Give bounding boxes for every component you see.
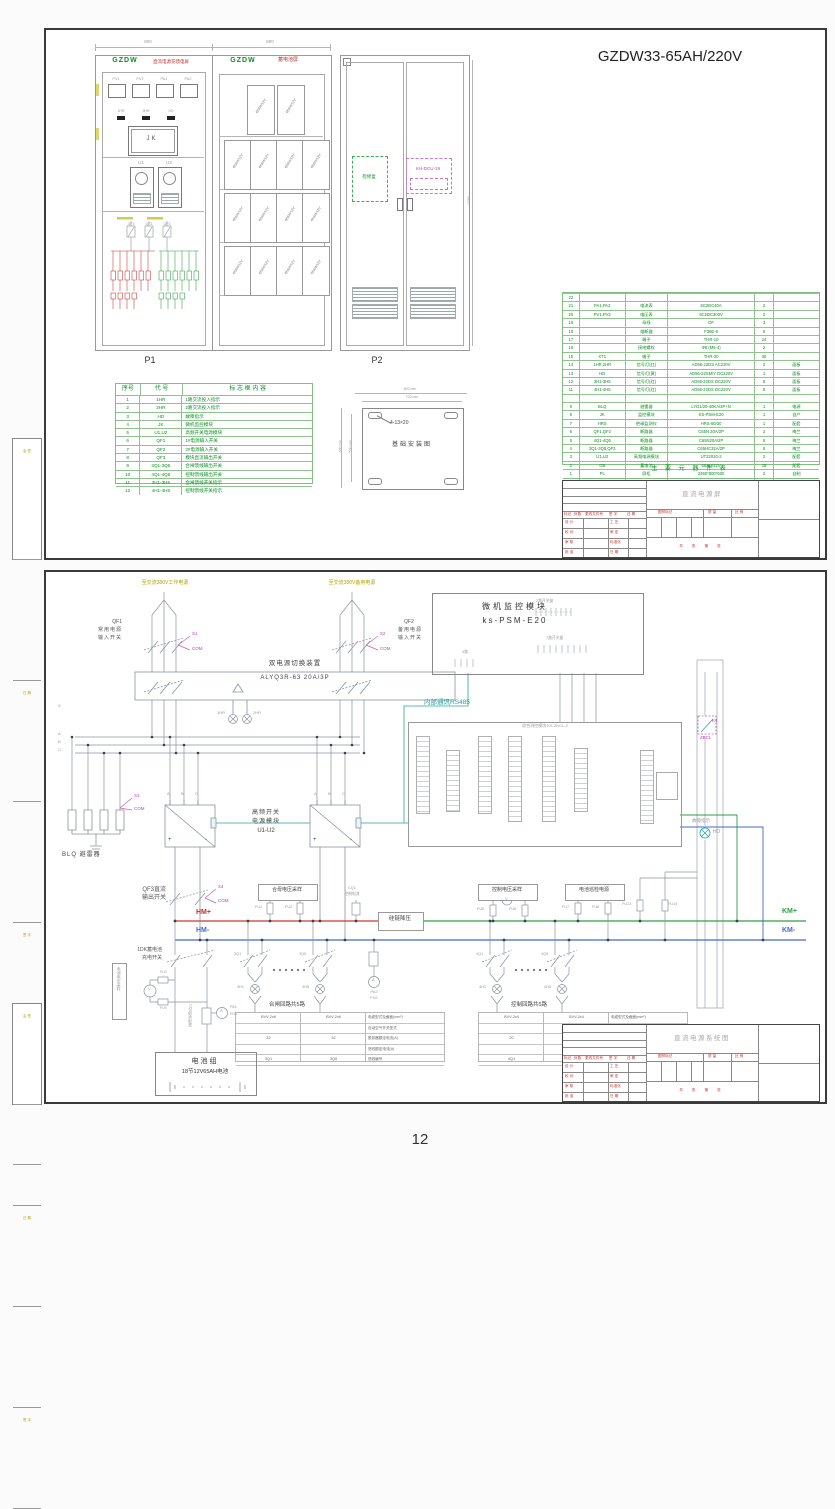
monitor-io3-label: 4路 bbox=[462, 650, 468, 654]
bom-no: 4 bbox=[563, 445, 579, 452]
legend-row: 2 2HR 2路交流投入指示 bbox=[116, 403, 312, 411]
p1-yellow-tag bbox=[96, 84, 99, 96]
dim-tick bbox=[330, 44, 331, 51]
feeder-cell bbox=[301, 1024, 366, 1035]
ats-name: 双电源切换装置 bbox=[215, 660, 375, 667]
module-term-b: B bbox=[181, 792, 184, 797]
km-minus-feed-wire bbox=[680, 827, 763, 940]
bom-qty: 2 bbox=[754, 453, 773, 460]
legend-row: 7 QF2 2#电源输入开关 bbox=[116, 445, 312, 453]
bom-note bbox=[773, 319, 819, 326]
tb-sig: 审 定 bbox=[610, 531, 618, 535]
door-handle bbox=[397, 198, 403, 211]
p1-wiring-schematic bbox=[103, 213, 205, 343]
bom-name: 绝缘监测仪 bbox=[625, 420, 667, 427]
bom-code: 4H1-4H5 bbox=[579, 386, 625, 393]
bom-note bbox=[773, 395, 819, 402]
module-plus: + bbox=[168, 837, 172, 844]
red-wiring bbox=[111, 251, 155, 309]
fuse-label-fu14: FU14 bbox=[668, 902, 677, 906]
bom-row: 21 PA1,PA2 电流表 6C2DC40A 2 bbox=[563, 301, 819, 309]
fuse-label-fu8: FU8 bbox=[592, 905, 599, 909]
u2-grille bbox=[161, 193, 179, 204]
bom-code bbox=[579, 395, 625, 402]
dim-tick bbox=[212, 44, 213, 51]
bom-no: 22 bbox=[563, 294, 579, 301]
bom-row: 15 XT1 端子 THR-30 30 bbox=[563, 352, 819, 360]
fnd-dim-inner bbox=[362, 401, 462, 402]
bom-qty: 1 bbox=[754, 411, 773, 418]
margin-cell bbox=[13, 1105, 41, 1206]
feeder-cell: 4Q1 bbox=[479, 1055, 544, 1066]
legend-desc: 合闸馈线开关指示 bbox=[181, 479, 312, 486]
blq-aux-com: COM bbox=[134, 806, 145, 811]
tb-sig: 日 期 bbox=[610, 1095, 618, 1099]
tb-mark-col: 质 量 bbox=[708, 511, 716, 515]
bom-no: 7 bbox=[563, 420, 579, 427]
battery-voltmeter-v: V bbox=[148, 987, 151, 992]
battery-cell-label: 65AH/12V bbox=[280, 91, 301, 122]
terminal-strip bbox=[478, 736, 492, 814]
bom-qty: 2 bbox=[754, 428, 773, 435]
bom-name: 接地螺栓 bbox=[625, 344, 667, 351]
legend-table: 序号 代 号 标 志 框 内 容 1 1HR 1路交流投入指示 2 2HR 2路… bbox=[115, 383, 313, 484]
fnd-dim-800: 800 mm bbox=[390, 387, 430, 391]
battery-pack-title: 电池组 bbox=[155, 1058, 255, 1066]
bom-name: 避雷器 bbox=[625, 403, 667, 410]
legend-row: 4 JK 微机监控模块 bbox=[116, 420, 312, 428]
battery-cell: 65AH/12V bbox=[276, 140, 304, 190]
fuse-label-fu2: FU2 bbox=[285, 905, 292, 909]
legend-code: JK bbox=[139, 421, 181, 428]
feeder-3q1-label: 3Q1 bbox=[234, 952, 241, 956]
bom-qty: 1 bbox=[754, 420, 773, 427]
feeder-4q5-label: 4Q5 bbox=[541, 952, 548, 956]
titleblock-sheet2: 标记 处数 更改文件号 签 字 日 期 设 计 校 对 审 核 批 准 工 艺 … bbox=[562, 1024, 820, 1102]
bom-name: 电流表 bbox=[625, 302, 667, 309]
bom-body: 22 21 PA1,PA2 电流表 6C2DC40A 2 20 PV1,PV2 … bbox=[563, 293, 819, 478]
feeder-cell bbox=[479, 1024, 544, 1035]
bom-qty: 5 bbox=[754, 386, 773, 393]
measure-sub-box bbox=[656, 772, 678, 800]
bom-row: 6 QF1,QF2 断路器 C65N 20A/2P 2 梅兰 bbox=[563, 427, 819, 435]
phase-label-c: C bbox=[58, 748, 61, 753]
bom-note bbox=[773, 344, 819, 351]
monitor-model: ks-PSM-E20 bbox=[450, 616, 580, 625]
fuse-label-fu7: FU7 bbox=[562, 905, 569, 909]
fault-indicator-label: 故障指示 bbox=[692, 818, 710, 823]
bom-code bbox=[579, 319, 625, 326]
tb-mark-col: 质 量 bbox=[708, 1055, 716, 1059]
cq1-label-1: CQ1 bbox=[334, 886, 370, 890]
bom-model: AD56-22DS DC220V bbox=[667, 386, 754, 393]
bom-no: 15 bbox=[563, 353, 579, 360]
feeder-group-closing bbox=[240, 921, 335, 1012]
bom-row: 17 端子 THR-10 24 bbox=[563, 335, 819, 343]
battery-cell: 65AH/12V bbox=[250, 140, 278, 190]
cabinet-p2-brand: GZDW bbox=[213, 57, 273, 65]
dim-line-height bbox=[472, 60, 473, 346]
legend-code: 3H1-3H5 bbox=[139, 479, 181, 486]
bom-model: C65N20A/2P bbox=[667, 437, 754, 444]
bom-model: THR-30 bbox=[667, 353, 754, 360]
ac-lamp2-label: 2HR bbox=[253, 711, 261, 716]
rs485-label: 内部通讯RS485 bbox=[424, 699, 470, 706]
bom-qty: 2 bbox=[754, 344, 773, 351]
bom-qty: 2 bbox=[754, 311, 773, 318]
fuse-label-fu13: FU13 bbox=[622, 902, 631, 906]
qf1-name-2: 输入开关 bbox=[70, 636, 122, 642]
bom-row: 3 U1,U2 高频电源模块 UT22010-2 2 配套 bbox=[563, 452, 819, 460]
battery-cell-label: 65AH/12V bbox=[227, 199, 248, 230]
bom-code: PV1,PV2 bbox=[579, 311, 625, 318]
terminal-strip bbox=[640, 750, 654, 824]
feeder-header-cell: 脱扣器额定电流(A) bbox=[366, 1034, 444, 1045]
margin-cell bbox=[13, 802, 41, 923]
p1-section-line bbox=[102, 211, 204, 212]
feeder-table-closing-col2: BVV-2x6323Q5 bbox=[300, 1012, 367, 1062]
fuse-label-fu5: FU5 bbox=[477, 907, 484, 911]
battery-ammeter-a: A bbox=[220, 1009, 223, 1014]
bom-code: BLQ bbox=[579, 403, 625, 410]
legend-row: 6 QF1 1#电源输入开关 bbox=[116, 436, 312, 444]
legend-code: 2HR bbox=[139, 404, 181, 411]
legend-row: 3 HD 故障指示 bbox=[116, 412, 312, 420]
module-label-2: 电源模块 bbox=[228, 819, 304, 826]
battery-cell: 65AH/12V bbox=[250, 246, 278, 296]
bus-label-hm-plus: HM+ bbox=[196, 909, 211, 917]
dim-label-800-p2: 800 bbox=[250, 39, 290, 44]
bom-row: 9 BLQ 避雷器 LYD1/20-40KA/3P+N 1 电源 bbox=[563, 402, 819, 410]
lamp-dots bbox=[117, 116, 125, 120]
blq-aux-s3: S3 bbox=[134, 793, 140, 798]
vent-grille bbox=[410, 304, 456, 319]
margin-strip-sheet1: 会 签 日 期 签 字 审 定 bbox=[12, 438, 42, 560]
bom-code: HRS bbox=[579, 420, 625, 427]
feeder-cell: 3Q5 bbox=[301, 1055, 366, 1066]
vent-grille bbox=[352, 304, 398, 319]
tb-rev-col: 签 字 bbox=[609, 513, 617, 517]
measure-box-title: 综合测控模块 KS-ZHCL-2 bbox=[455, 724, 635, 729]
ammeter-a: A bbox=[372, 978, 375, 983]
meter-label: PV1 bbox=[108, 77, 124, 81]
bom-model: THR-10 bbox=[667, 336, 754, 343]
meter-label: PV2 bbox=[132, 77, 148, 81]
drawing-title: GZDW33-65AH/220V bbox=[530, 48, 810, 65]
bom-no: 8 bbox=[563, 411, 579, 418]
fnd-dim-vline bbox=[351, 414, 352, 482]
bom-qty bbox=[754, 395, 773, 402]
tb-sig: 审 核 bbox=[565, 541, 573, 545]
legend-no: 3 bbox=[116, 413, 139, 420]
cabinet-p2-name: 蓄电池屏 bbox=[278, 58, 328, 64]
qf1-aux-s1: S1 bbox=[192, 631, 198, 636]
u1-fan-icon bbox=[135, 172, 148, 185]
feeder-cell bbox=[236, 1024, 301, 1035]
feeder-group-control bbox=[482, 921, 577, 1012]
phase-label-a: A bbox=[58, 732, 61, 737]
battery-current-sample-label: CQ2电池电流 bbox=[188, 1004, 192, 1027]
feeder-3q5-label: 3Q5 bbox=[299, 952, 306, 956]
tb-sheet-info: 共 张 第 张 bbox=[646, 1089, 758, 1093]
meter-label: PA1 bbox=[156, 77, 172, 81]
feeder-4h1-label: 4H1 bbox=[479, 985, 486, 989]
margin-strip-sheet2: 会 签 日 期 签 字 bbox=[12, 1003, 42, 1105]
legend-desc: 2#电源输入开关 bbox=[181, 446, 312, 453]
fnd-dim-vline bbox=[341, 408, 342, 488]
bom-name: 信号灯(红) bbox=[625, 378, 667, 385]
legend-row: 1 1HR 1路交流投入指示 bbox=[116, 395, 312, 403]
bom-note bbox=[773, 302, 819, 309]
fuse-label-fu4: FU4 bbox=[160, 1006, 167, 1010]
fuse-label-fu1: FU1 bbox=[255, 905, 262, 909]
bom-code: QF1,QF2 bbox=[579, 428, 625, 435]
bom-model: C65N 20A/2P bbox=[667, 428, 754, 435]
bom-model: HRS-60/30 bbox=[667, 420, 754, 427]
legend-no: 8 bbox=[116, 454, 139, 461]
legend-desc: 1#电源输入开关 bbox=[181, 437, 312, 444]
dim-label-2360: 2360 bbox=[467, 196, 472, 205]
meter bbox=[156, 84, 174, 98]
bom-code: 4Q1-4Q5 bbox=[579, 437, 625, 444]
door-handle bbox=[407, 198, 413, 211]
bom-model: AD56-22SM/Y DC220V bbox=[667, 370, 754, 377]
battery-patrol-label: 电池巡检电源 bbox=[565, 888, 623, 894]
module-term-a: A bbox=[314, 792, 317, 797]
tb-mark-col: 比 例 bbox=[735, 511, 743, 515]
legend-desc: 微机监控模块 bbox=[181, 421, 312, 428]
bom-no: 9 bbox=[563, 403, 579, 410]
tb-sig: 工 艺 bbox=[610, 1065, 618, 1069]
yellow-marks bbox=[117, 217, 163, 220]
bom-model: 6C2DC300V bbox=[667, 311, 754, 318]
legend-no: 2 bbox=[116, 404, 139, 411]
legend-no: 4 bbox=[116, 421, 139, 428]
feeder-cell: 32 bbox=[301, 1034, 366, 1045]
bom-row: 12 3H1-3H5 信号灯(红) AD56-22DS DC220V 5 面板 bbox=[563, 377, 819, 385]
bom-name: 端子 bbox=[625, 353, 667, 360]
terminal-strip bbox=[508, 736, 522, 822]
legend-desc: 模块直流输出开关 bbox=[181, 454, 312, 461]
tb-product-name: 直流电源屏 bbox=[646, 491, 758, 498]
caption-p1: P1 bbox=[135, 355, 165, 365]
bom-model: Φ8 (M6-4) bbox=[667, 344, 754, 351]
bom-note bbox=[773, 353, 819, 360]
bom-row: 8 JK 监控模块 KS-PSM-E20 1 自产 bbox=[563, 410, 819, 418]
bom-name: 母线 bbox=[625, 319, 667, 326]
legend-no: 7 bbox=[116, 446, 139, 453]
bom-qty: 2 bbox=[754, 361, 773, 368]
module-term-b: B bbox=[328, 792, 331, 797]
bom-qty: 2 bbox=[754, 302, 773, 309]
battery-cell: 65AH/12V bbox=[224, 140, 252, 190]
tb-sig: 校 对 bbox=[565, 1075, 573, 1079]
fnd-slot-label: 4-13×20 bbox=[390, 421, 409, 427]
battery-cell-label: 65AH/12V bbox=[253, 146, 274, 177]
bom-note: 梅兰 bbox=[773, 428, 819, 435]
legend-code: 4H1-4H5 bbox=[139, 487, 181, 494]
tb-sig: 设 计 bbox=[565, 521, 573, 525]
signal-lamps-ac bbox=[229, 715, 252, 724]
tb-rev-col: 标记 bbox=[564, 513, 571, 517]
dcu-box-inner bbox=[410, 178, 448, 190]
blq-arrester bbox=[68, 810, 124, 852]
qf-glyphs bbox=[127, 221, 171, 251]
legend-desc: 高频开关电源模块 bbox=[181, 429, 312, 436]
feeder-caption-closing: 合闸回路共5路 bbox=[242, 1002, 332, 1008]
dim-line bbox=[95, 47, 212, 48]
bom-code: U1,U2 bbox=[579, 453, 625, 460]
qf3-label-2: 输出开关 bbox=[108, 895, 166, 902]
feeder-header-cell: 馈线编号 bbox=[366, 1055, 444, 1066]
bom-row: 20 PV1,PV2 电压表 6C2DC300V 2 bbox=[563, 310, 819, 318]
bom-row: 16 接地螺栓 Φ8 (M6-4) 2 bbox=[563, 343, 819, 351]
legend-no: 1 bbox=[116, 396, 139, 403]
phase-label-b: B bbox=[58, 740, 61, 745]
km-voltage-sample-label: 控制电压采样 bbox=[478, 888, 536, 894]
module-minus: - bbox=[205, 837, 207, 844]
dim-tick bbox=[95, 44, 96, 51]
shunt-mid-pa: PA2 bbox=[364, 990, 384, 994]
module-term-a: A bbox=[167, 792, 170, 797]
legend-row: 8 QF3 模块直流输出开关 bbox=[116, 453, 312, 461]
ac-source-label-1: 至交流380V工作电源 bbox=[110, 581, 220, 587]
bom-model: F36E-6 bbox=[667, 328, 754, 335]
bom-row: 13 HD 信号灯(黄) AD56-22SM/Y DC220V 1 面板 bbox=[563, 369, 819, 377]
terminal-strip bbox=[542, 736, 556, 822]
bom-no: 5 bbox=[563, 437, 579, 444]
bom-name: 断路器 bbox=[625, 428, 667, 435]
feeder-cell: BVV-2x6 bbox=[301, 1013, 366, 1024]
bom-name: 端子 bbox=[625, 336, 667, 343]
ac-source-label-2: 至交流380V备用电源 bbox=[297, 581, 407, 587]
bom-code: HD bbox=[579, 370, 625, 377]
bom-row: 19 母线 OF 3 bbox=[563, 318, 819, 326]
feeder-header-cell: 电缆型式及截面(mm²) bbox=[609, 1013, 687, 1024]
battery-cell-label: 65AH/12V bbox=[279, 146, 300, 177]
module-label-1: 高频开关 bbox=[228, 810, 304, 817]
bom-note bbox=[773, 336, 819, 343]
bom-note: 自产 bbox=[773, 411, 819, 418]
legend-no: 6 bbox=[116, 437, 139, 444]
bom-name: 熔断器 bbox=[625, 328, 667, 335]
module-label-3: U1-U2 bbox=[228, 828, 304, 835]
u2-fan-icon bbox=[163, 172, 176, 185]
lamp-label: 1HR bbox=[114, 109, 128, 113]
vent-grille bbox=[352, 287, 398, 302]
battery-cell: 65AH/12V bbox=[302, 193, 330, 243]
bom-note: 面板 bbox=[773, 361, 819, 368]
fnd-dim-outer bbox=[355, 393, 467, 394]
meter bbox=[108, 84, 126, 98]
legend-no: 11 bbox=[116, 479, 139, 486]
shunt-mid-fh: FH2 bbox=[364, 996, 384, 1000]
battery-cell: 65AH/12V bbox=[224, 246, 252, 296]
tb-rev-col: 处数 bbox=[574, 1057, 581, 1061]
tb-sig: 审 定 bbox=[610, 1075, 618, 1079]
u2-label: U2 bbox=[158, 160, 180, 165]
margin-cell bbox=[13, 560, 41, 681]
legend-header-row: 序号 代 号 标 志 框 内 容 bbox=[116, 384, 312, 395]
bom-name: 信号灯(红) bbox=[625, 361, 667, 368]
qf1-name-1: 常用电源 bbox=[70, 628, 122, 634]
tb-mark-col: 图样标记 bbox=[658, 511, 672, 515]
bom-qty: 1 bbox=[754, 370, 773, 377]
tb-sig: 工 艺 bbox=[610, 521, 618, 525]
feeder-cell bbox=[479, 1045, 544, 1056]
bom-row: 14 1HR,2HR 信号灯(红) AD56-22DS AC220V 2 面板 bbox=[563, 360, 819, 368]
qf2-name-2: 输入开关 bbox=[398, 636, 422, 642]
meter bbox=[180, 84, 198, 98]
tb-rev-col: 处数 bbox=[574, 513, 581, 517]
tb-sig: 设 计 bbox=[565, 1065, 573, 1069]
bom-no: 13 bbox=[563, 370, 579, 377]
page-number: 12 bbox=[400, 1131, 440, 1148]
bom-row: 11 4H1-4H5 信号灯(红) AD56-22DS DC220V 5 面板 bbox=[563, 385, 819, 393]
meter-label: PA2 bbox=[180, 77, 196, 81]
module-term-c: C bbox=[342, 792, 345, 797]
bom-qty: 6 bbox=[754, 437, 773, 444]
bom-code: XT1 bbox=[579, 353, 625, 360]
bom-note: 梅兰 bbox=[773, 445, 819, 452]
dc-rails bbox=[175, 921, 806, 940]
bom-note: 电源 bbox=[773, 403, 819, 410]
u1-label: U1 bbox=[130, 160, 152, 165]
module-plus: + bbox=[313, 837, 317, 844]
bom-no: 19 bbox=[563, 319, 579, 326]
bom-row: 5 4Q1-4Q5 断路器 C65N20A/2P 6 梅兰 bbox=[563, 436, 819, 444]
bom-row: 4 3Q1-3Q5,QF3 断路器 C65HC32A/2P 5 梅兰 bbox=[563, 444, 819, 452]
feeder-3h5-label: 3H5 bbox=[302, 985, 309, 989]
battery-pack-sub: 18节12V65AH电池 bbox=[155, 1069, 255, 1075]
bom-code: JK bbox=[579, 411, 625, 418]
battery-cell-label: 65AH/12V bbox=[227, 252, 248, 283]
bom-model: 6C2DC40A bbox=[667, 302, 754, 309]
qf1-aux-com: COM bbox=[192, 646, 203, 651]
margin-label-text: 会 签 bbox=[23, 449, 31, 453]
legend-desc: 故障指示 bbox=[181, 413, 312, 420]
margin-label: 签 字 bbox=[13, 1408, 41, 1509]
ellipsis-dots bbox=[273, 969, 547, 971]
ac-lamp1-label: 1HR bbox=[217, 711, 225, 716]
feeder-3h1-label: 3H1 bbox=[237, 985, 244, 989]
tb-sig: 日 期 bbox=[610, 551, 618, 555]
battery-cell: 65AH/12V bbox=[277, 85, 305, 135]
bom-model bbox=[667, 395, 754, 402]
battery-cell: 65AH/12V bbox=[276, 193, 304, 243]
feeder-4q1-label: 4Q1 bbox=[476, 952, 483, 956]
bom-no: 20 bbox=[563, 311, 579, 318]
fnd-slot bbox=[444, 412, 458, 419]
module-term-c: C bbox=[195, 792, 198, 797]
bom-name: 信号灯(红) bbox=[625, 386, 667, 393]
margin-label-text: 日 期 bbox=[23, 1216, 31, 1220]
legend-code: 4Q1-4Q5 bbox=[139, 471, 181, 478]
phase-label-x: X bbox=[58, 704, 61, 709]
silicon-chain-label: 硅链降压 bbox=[378, 916, 422, 922]
bom-row: 22 bbox=[563, 293, 819, 301]
legend-desc: 2路交流投入指示 bbox=[181, 404, 312, 411]
bom-qty bbox=[754, 294, 773, 301]
battery-switch-label-2: 充电开关 bbox=[100, 956, 162, 962]
monitor-name: 微机监控模块 bbox=[450, 602, 580, 611]
legend-no: 5 bbox=[116, 429, 139, 436]
legend-code: 3Q1-3Q5 bbox=[139, 462, 181, 469]
terminal-strip bbox=[446, 750, 460, 812]
margin-label: 会 签 bbox=[13, 1004, 41, 1105]
lamp-label: HD bbox=[164, 109, 178, 113]
bom-row: 7 HRS 绝缘监测仪 HRS-60/30 1 配套 bbox=[563, 419, 819, 427]
